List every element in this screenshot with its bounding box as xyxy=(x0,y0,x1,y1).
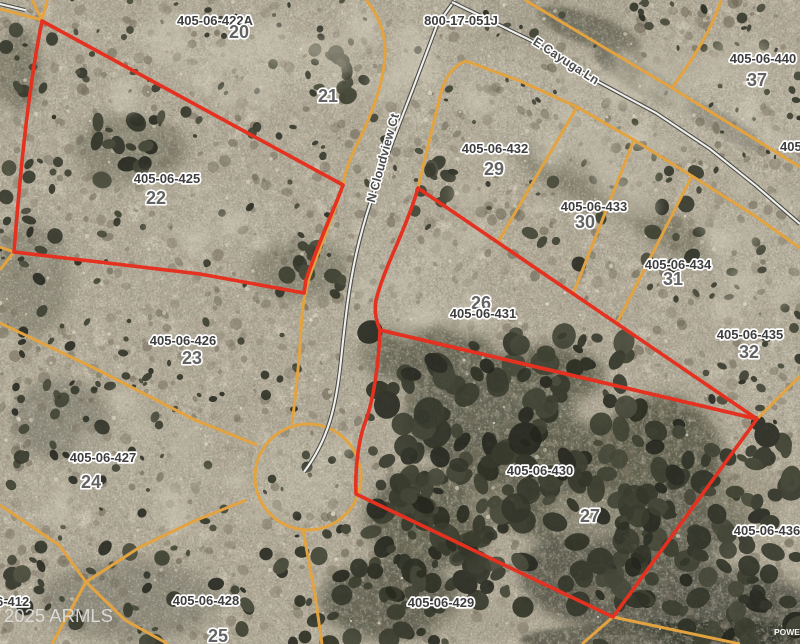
svg-text:32: 32 xyxy=(739,342,759,362)
svg-text:405-06-436: 405-06-436 xyxy=(734,523,800,538)
svg-text:21: 21 xyxy=(318,86,338,106)
svg-text:405-06-429: 405-06-429 xyxy=(408,595,475,610)
svg-text:25: 25 xyxy=(208,626,228,644)
svg-text:POWE: POWE xyxy=(774,627,800,637)
svg-text:20: 20 xyxy=(229,22,249,42)
svg-text:405-06-428: 405-06-428 xyxy=(173,593,240,608)
svg-text:405-06-440: 405-06-440 xyxy=(730,51,797,66)
svg-text:29: 29 xyxy=(484,159,504,179)
svg-text:30: 30 xyxy=(575,212,595,232)
svg-text:800-17-051J: 800-17-051J xyxy=(424,13,498,28)
svg-text:2025 ARMLS: 2025 ARMLS xyxy=(4,605,113,626)
svg-text:31: 31 xyxy=(663,269,683,289)
svg-text:405-06-435: 405-06-435 xyxy=(717,327,784,342)
svg-text:405-06-432: 405-06-432 xyxy=(462,141,529,156)
svg-text:405-06-431: 405-06-431 xyxy=(450,306,517,321)
svg-text:22: 22 xyxy=(146,188,166,208)
svg-text:405-06-430: 405-06-430 xyxy=(507,463,574,478)
svg-text:37: 37 xyxy=(747,70,767,90)
svg-text:23: 23 xyxy=(182,348,202,368)
svg-text:27: 27 xyxy=(580,506,600,526)
svg-text:405-06-427: 405-06-427 xyxy=(70,450,137,465)
svg-text:405-06-426: 405-06-426 xyxy=(150,333,217,348)
svg-text:24: 24 xyxy=(81,472,101,492)
svg-text:405-06-425: 405-06-425 xyxy=(134,171,201,186)
svg-text:405-06-44: 405-06-44 xyxy=(780,139,800,154)
